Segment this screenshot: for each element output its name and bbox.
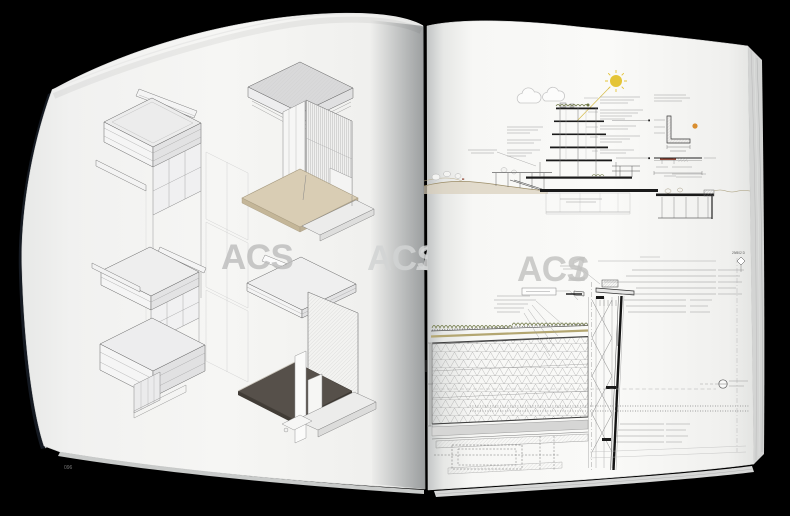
svg-text:29/802 D: 29/802 D xyxy=(732,251,746,255)
left-page-number: 096 xyxy=(64,465,73,471)
watermark-left: ACS xyxy=(221,238,293,277)
watermark-right: ACS 1 xyxy=(517,249,593,289)
svg-text:ACS: ACS xyxy=(221,238,293,277)
book-photo: ACS ACS 1 096 xyxy=(0,0,790,516)
book-spread: ACS ACS 1 096 xyxy=(0,0,790,516)
left-page: ACS ACS 1 096 xyxy=(22,13,441,489)
right-page: 29/802 D ACS 1 097 xyxy=(424,21,754,490)
